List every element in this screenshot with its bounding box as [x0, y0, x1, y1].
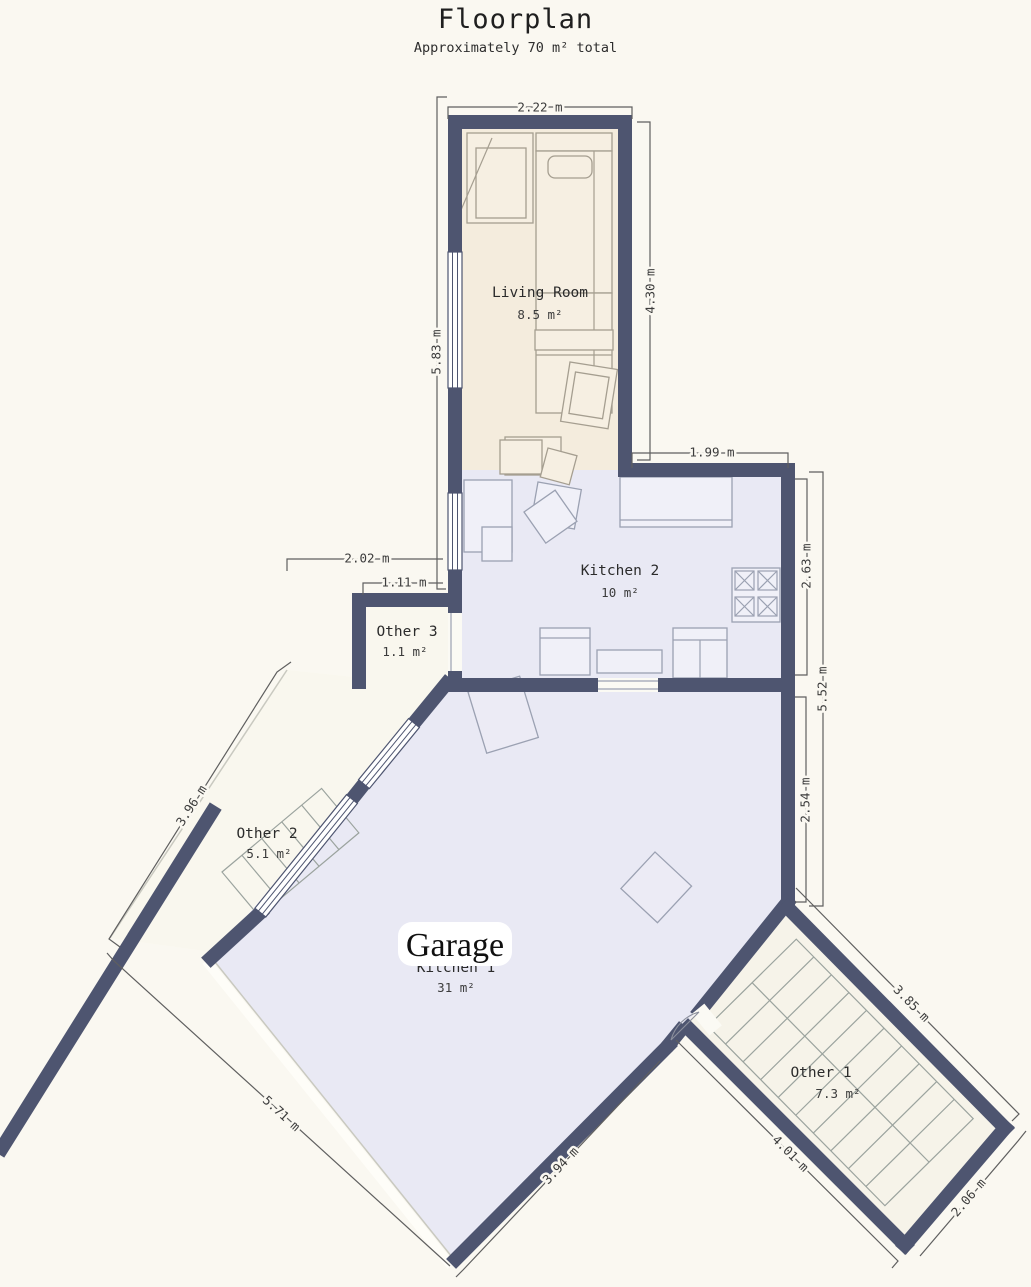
- dim-label-2-63: 2.63 m: [799, 543, 814, 588]
- kitchen-2-label: Kitchen 2: [581, 563, 660, 579]
- armchair: [561, 362, 618, 429]
- dim-label-1-11: 1.11 m: [381, 575, 426, 590]
- living-room-window: [448, 252, 462, 388]
- kitchen-1-area: 31 m²: [437, 980, 475, 995]
- garage-badge-label: Garage: [406, 927, 504, 964]
- living-room-area: 8.5 m²: [517, 307, 562, 322]
- floorplan-canvas: 2.22 m 4.30 m 5.83 m 1.99 m 2.63 m 5.52 …: [0, 0, 1031, 1287]
- dim-label-5-71: 5.71 m: [260, 1093, 304, 1134]
- living-room-label: Living Room: [492, 285, 588, 301]
- kitchen-counter: [620, 477, 732, 527]
- dim-label-5-52: 5.52 m: [815, 666, 830, 711]
- dim-label-4-30: 4.30 m: [643, 268, 658, 313]
- garage-badge: Garage: [398, 922, 512, 966]
- other-1-area: 7.3 m²: [815, 1086, 860, 1101]
- dim-label-2-22: 2.22 m: [517, 100, 562, 115]
- other-2-area: 5.1 m²: [246, 846, 291, 861]
- garage-nw-wall-b: [352, 784, 364, 799]
- other-3-label: Other 3: [376, 624, 437, 640]
- kitchen-2-area: 10 m²: [601, 585, 639, 600]
- other-1-label: Other 1: [790, 1065, 851, 1081]
- floorplan-page: Floorplan Approximately 70 m² total: [0, 0, 1031, 1287]
- dim-label-1-99: 1.99 m: [689, 445, 734, 460]
- other-3-area: 1.1 m²: [382, 644, 427, 659]
- other-3-floor: [352, 593, 455, 692]
- other-2-label: Other 2: [236, 826, 297, 842]
- dim-label-5-83: 5.83 m: [429, 329, 444, 374]
- shelf: [535, 330, 613, 350]
- other-3-door: [448, 613, 462, 671]
- stove: [732, 568, 780, 622]
- dim-label-2-54: 2.54 m: [798, 777, 813, 822]
- kitchen-window: [448, 493, 462, 570]
- kitchen-sliding-door: [598, 678, 658, 692]
- bed: [461, 133, 533, 223]
- other-2-left-wall: [2, 812, 212, 1148]
- dim-label-2-02: 2.02 m: [344, 551, 389, 566]
